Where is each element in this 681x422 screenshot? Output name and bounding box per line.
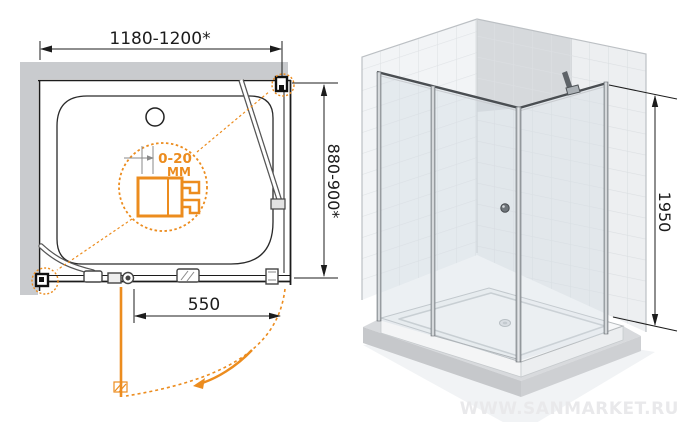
swing-direction-arrow [193, 350, 252, 389]
shower-enclosure-technical-drawing: 0-20 ММ [0, 0, 681, 422]
plan-view: 0-20 ММ [20, 29, 343, 397]
drawing-canvas: 0-20 ММ [0, 0, 681, 422]
glass-post-right [604, 82, 608, 334]
door-hinge-post [431, 86, 435, 336]
depth-dimension-label: 880-900* [324, 144, 343, 219]
glass-post-left [377, 72, 381, 321]
width-dimension-label: 1180-1200* [109, 29, 210, 49]
height-dimension-label: 1950 [655, 192, 674, 233]
plan-left-wall [20, 62, 38, 295]
plan-top-wall [20, 62, 288, 79]
watermark: WWW.SANMARKET.RU [460, 399, 679, 419]
corner-post [516, 107, 521, 362]
isometric-view: 1950 [362, 19, 677, 422]
door-knob [501, 204, 509, 212]
iso-glass-panels [377, 72, 608, 362]
adjustment-unit-label: ММ [167, 165, 191, 179]
door-width-dimension-label: 550 [188, 295, 220, 315]
